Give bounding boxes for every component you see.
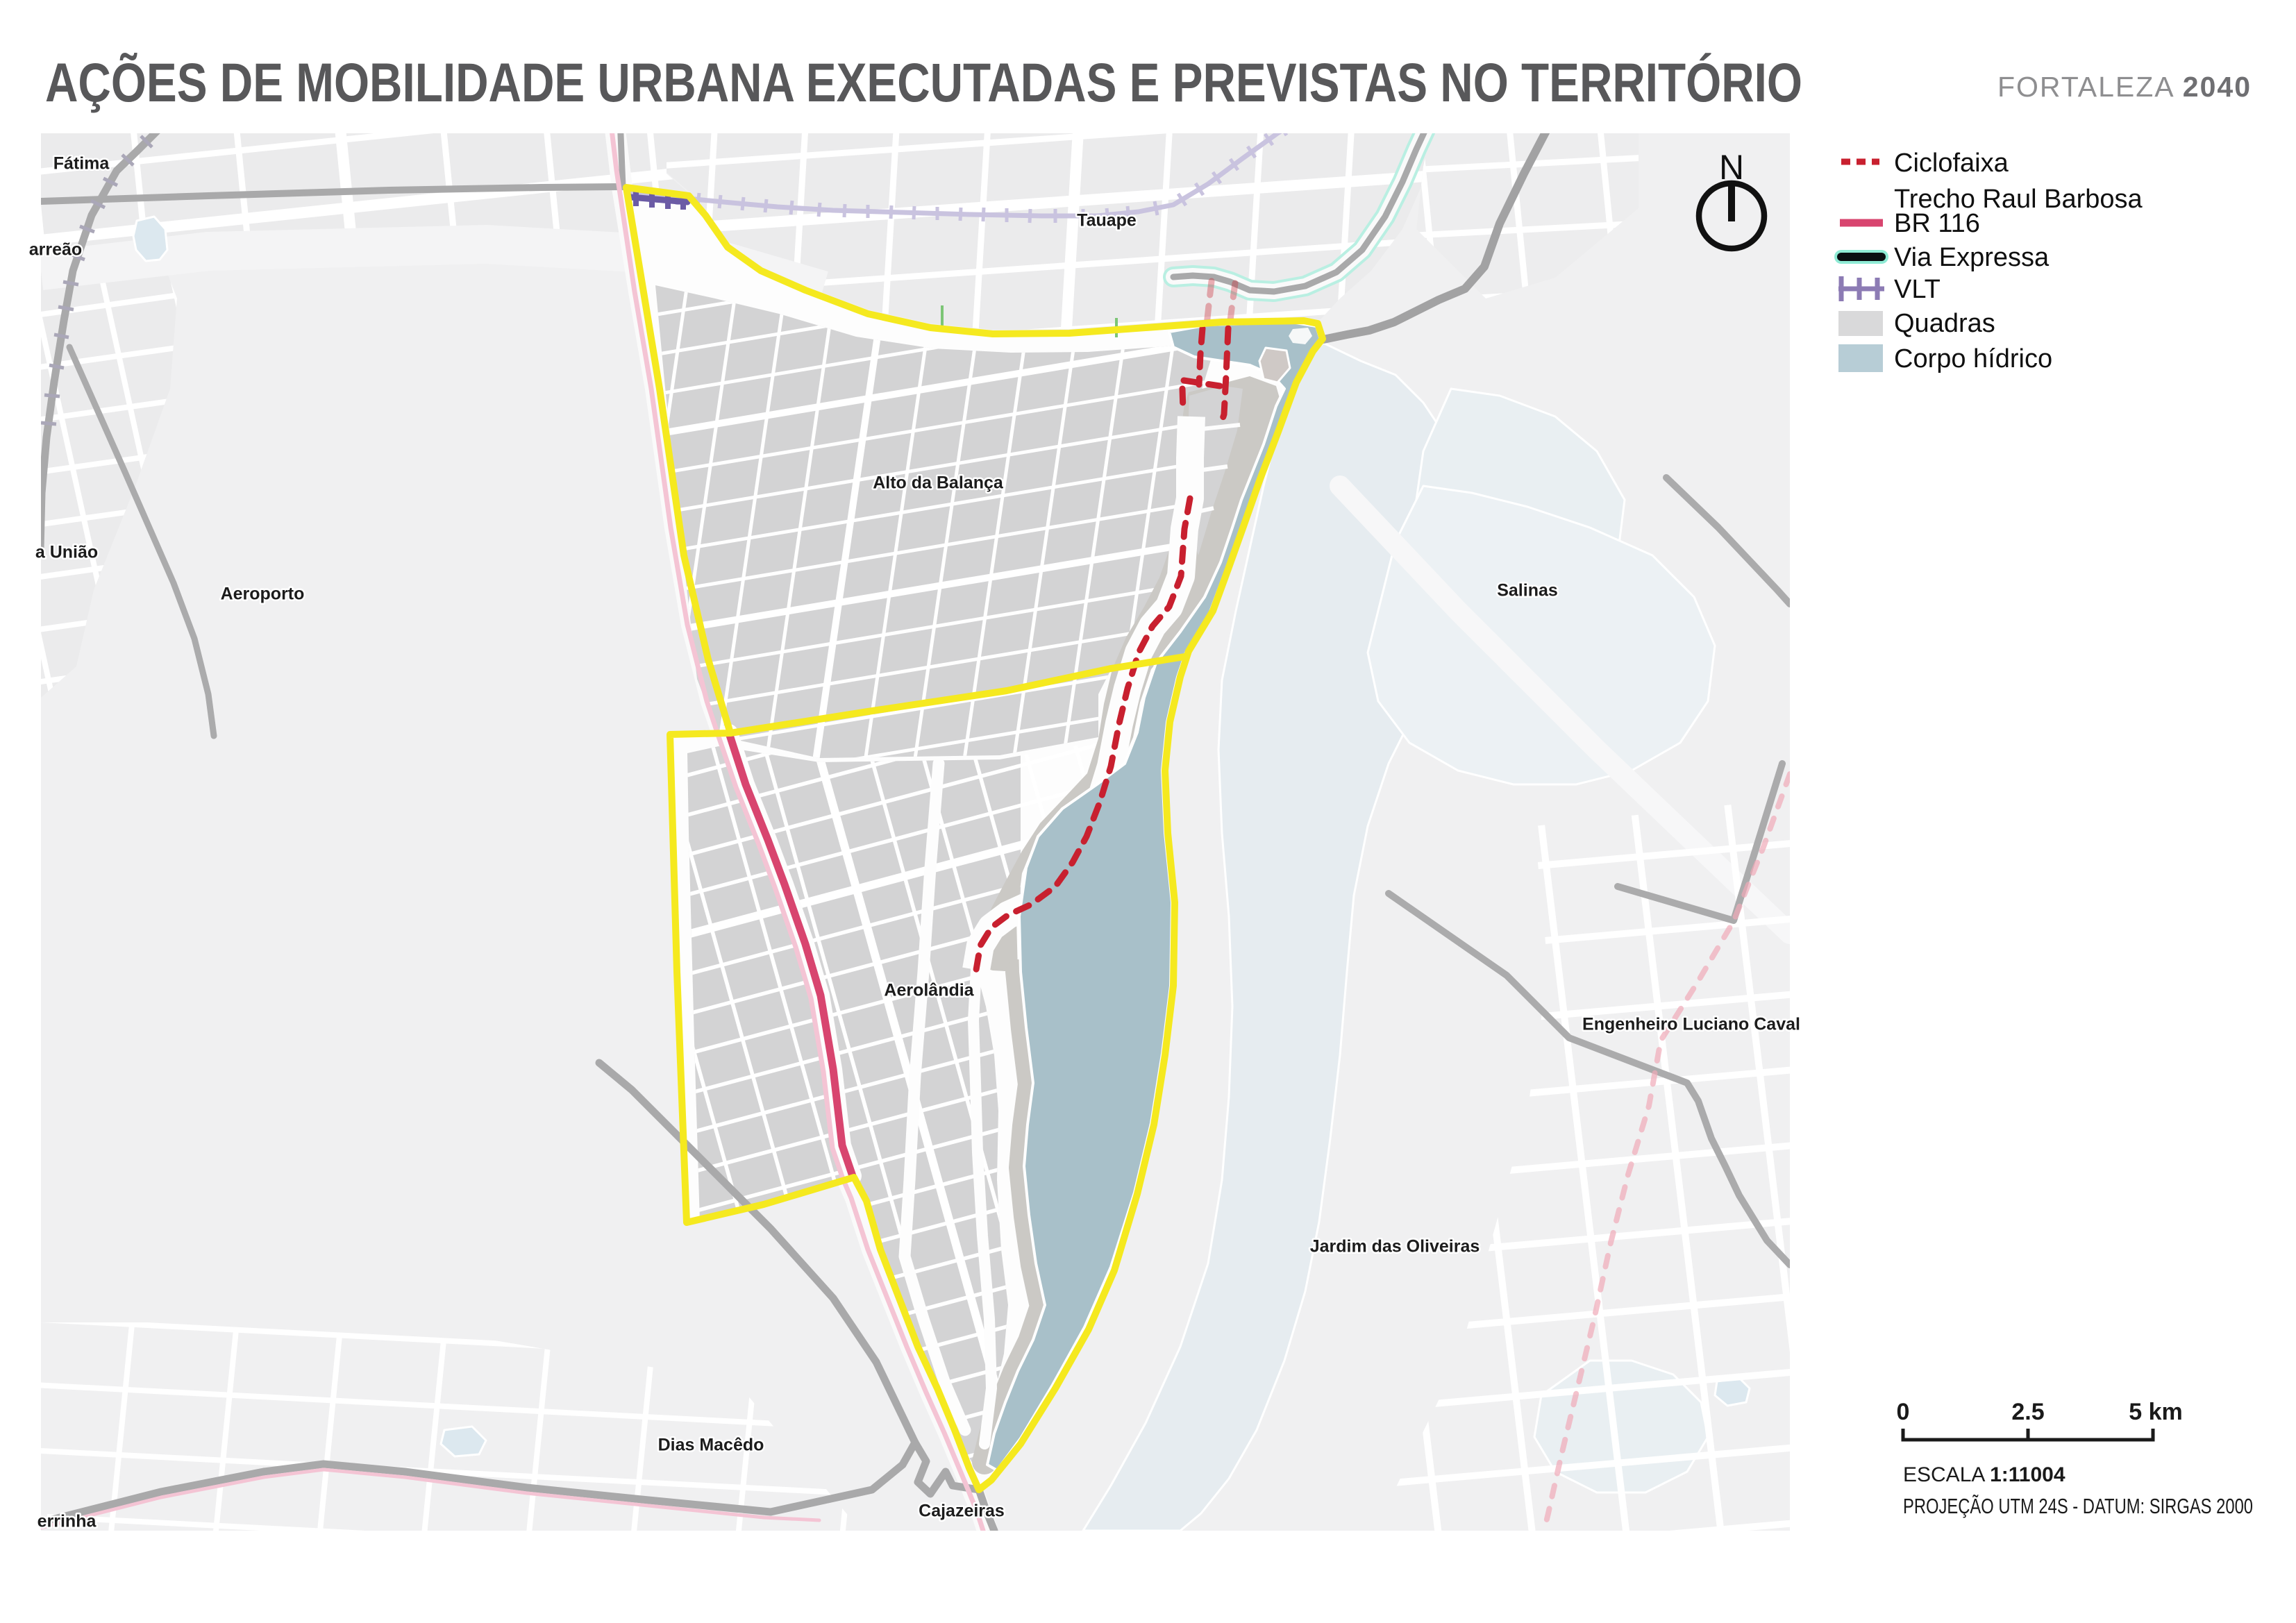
svg-text:Ciclofaixa: Ciclofaixa [1894, 149, 2009, 178]
svg-text:errinha: errinha [37, 1512, 97, 1531]
svg-text:VLT: VLT [1894, 275, 1941, 304]
svg-text:a União: a União [35, 543, 98, 562]
svg-text:2.5: 2.5 [2011, 1399, 2044, 1425]
svg-text:Dias Macêdo: Dias Macêdo [658, 1436, 764, 1455]
svg-text:Aeroporto: Aeroporto [221, 585, 305, 604]
svg-text:Salinas: Salinas [1497, 581, 1558, 600]
svg-text:Tauape: Tauape [1077, 211, 1137, 230]
svg-text:Aerolândia: Aerolândia [884, 981, 974, 1000]
svg-text:AÇÕES DE MOBILIDADE URBANA EXE: AÇÕES DE MOBILIDADE URBANA EXECUTADAS E … [45, 51, 1802, 113]
svg-text:0: 0 [1897, 1399, 1910, 1425]
svg-text:Cajazeiras: Cajazeiras [919, 1502, 1005, 1521]
svg-text:FORTALEZA 2040: FORTALEZA 2040 [1997, 71, 2252, 103]
svg-text:BR 116: BR 116 [1894, 209, 1980, 238]
svg-text:Jardim das Oliveiras: Jardim das Oliveiras [1310, 1237, 1480, 1256]
svg-text:Engenheiro Luciano Caval: Engenheiro Luciano Caval [1582, 1015, 1800, 1034]
svg-text:Corpo hídrico: Corpo hídrico [1894, 344, 2052, 373]
svg-text:Quadras: Quadras [1894, 309, 1995, 338]
svg-text:5 km: 5 km [2129, 1399, 2183, 1425]
svg-text:N: N [1719, 148, 1744, 187]
svg-text:PROJEÇÃO UTM 24S - DATUM: SIRG: PROJEÇÃO UTM 24S - DATUM: SIRGAS 2000 [1903, 1494, 2253, 1518]
svg-text:Via Expressa: Via Expressa [1894, 243, 2050, 272]
svg-text:Alto da Balança: Alto da Balança [873, 473, 1004, 493]
svg-text:Fátima: Fátima [53, 154, 110, 174]
svg-text:ESCALA 1:11004: ESCALA 1:11004 [1903, 1463, 2065, 1486]
svg-text:arreão: arreão [29, 240, 82, 260]
